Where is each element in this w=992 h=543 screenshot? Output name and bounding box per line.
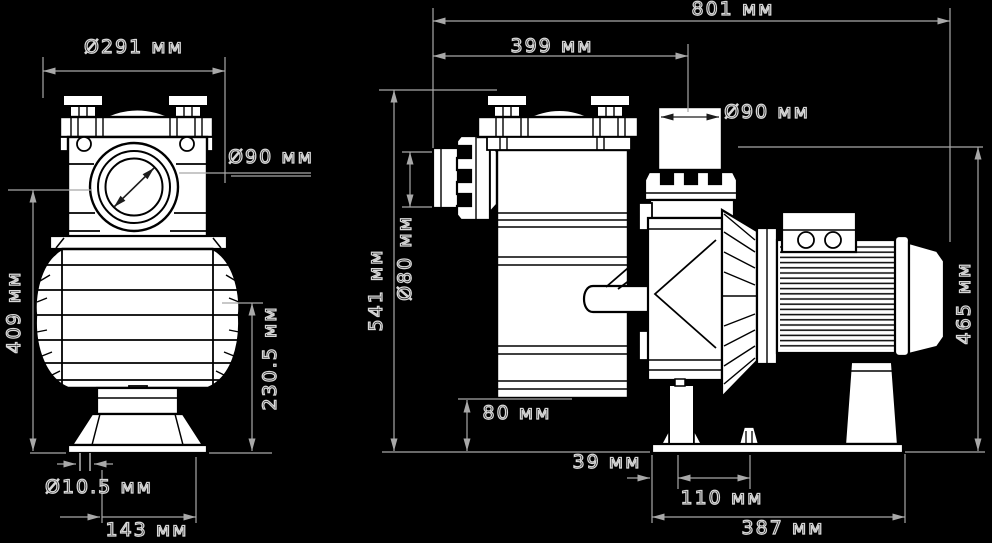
dim-label-port-diameter: Ø90 мм [228,146,314,168]
dim-label-port-center-height: 409 мм [3,271,25,354]
strainer-pot [497,150,628,398]
dim-label-foot-hole-diameter: Ø10.5 мм [45,476,153,498]
dim-label-outlet-diameter: Ø90 мм [724,101,810,123]
pump-foot [661,379,702,445]
dim-label-tank-center-height: 230.5 мм [259,305,281,410]
motor-fins [780,245,894,350]
strainer-lid [478,95,638,150]
pump-dimension-drawing: Ø291 мм Ø90 мм 409 мм 230.5 мм Ø10.5 мм … [0,0,992,543]
dim-label-overall-length: 801 мм [692,0,775,20]
motor [777,212,944,356]
motor-end-cap [909,243,944,354]
dim-label-flange-diameter: Ø291 мм [84,36,184,58]
dim-label-inlet-to-outlet: 399 мм [511,35,594,57]
dim-label-foot-hole-span: 143 мм [106,519,189,541]
dim-label-outlet-top-height: 465 мм [953,262,975,345]
terminal-box [782,212,856,252]
foot-boss [739,427,759,445]
front-tank-shoulder [50,236,227,249]
front-lid-bolts [63,95,208,119]
foot-slot [80,453,90,471]
dim-label-clearance: 80 мм [483,402,552,424]
dim-label-overall-height: 541 мм [365,249,387,332]
dim-label-hole-spacing: 110 мм [681,487,764,509]
dim-label-edge-to-hole: 39 мм [573,451,642,473]
cable-gland [825,232,841,248]
front-view [36,95,240,453]
outlet-union-nut [645,172,737,200]
dim-label-base-length: 387 мм [742,517,825,539]
front-port-circles [90,143,178,231]
motor-pedestal [845,362,898,444]
drawing-svg [0,0,992,543]
dim-label-inlet-diameter: Ø80 мм [394,215,416,301]
front-tank [36,249,240,397]
front-base [68,388,207,453]
base-plate [652,444,903,453]
cable-gland [798,232,814,248]
fan-shroud [722,210,777,397]
pump-casing [639,200,734,380]
ext-80d [402,152,432,207]
motor-rear-ring [895,236,909,356]
